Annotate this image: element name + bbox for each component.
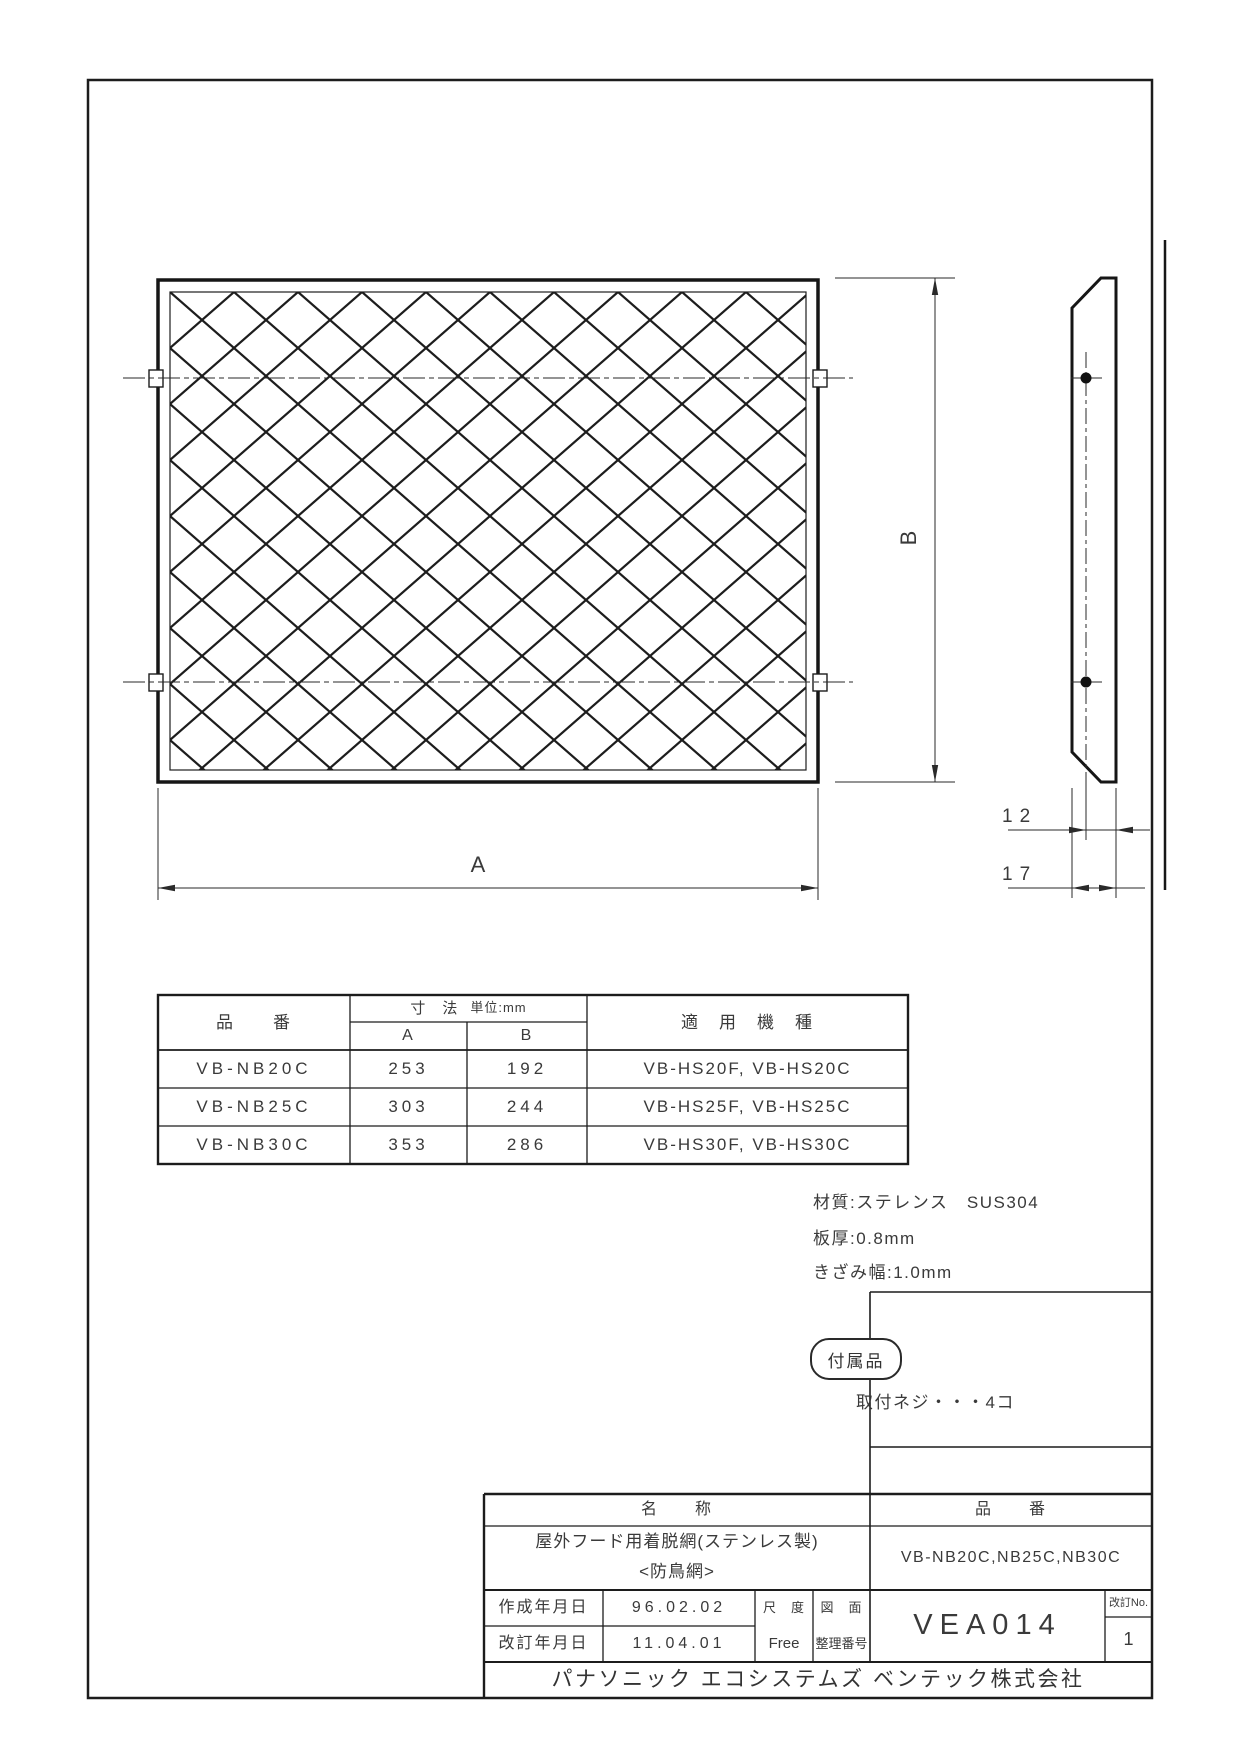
title-revised-date: 11.04.01 bbox=[603, 1626, 755, 1662]
screw-lower bbox=[1081, 677, 1092, 688]
table-row-models: VB-HS30F, VB-HS30C bbox=[587, 1126, 908, 1164]
title-name-line1: 屋外フード用着脱網(ステンレス製) bbox=[484, 1527, 870, 1557]
title-name-label: 名 称 bbox=[484, 1494, 870, 1526]
table-row-a: 303 bbox=[350, 1088, 467, 1126]
dim-a-label: A bbox=[471, 852, 486, 877]
title-created-label: 作成年月日 bbox=[484, 1590, 603, 1626]
title-drawing-no: VEA014 bbox=[870, 1590, 1105, 1662]
table-row-part-no: VB-NB20C bbox=[158, 1050, 350, 1088]
table-row-part-no: VB-NB25C bbox=[158, 1088, 350, 1126]
title-scale-value: Free bbox=[755, 1626, 813, 1662]
title-drawing-no-label-2: 整理番号 bbox=[813, 1626, 870, 1662]
table-row-a: 253 bbox=[350, 1050, 467, 1088]
dim-b-label: B bbox=[896, 531, 921, 546]
table-row-part-no: VB-NB30C bbox=[158, 1126, 350, 1164]
table-row-b: 286 bbox=[467, 1126, 587, 1164]
table-header-models: 適 用 機 種 bbox=[587, 995, 908, 1050]
table-row-a: 353 bbox=[350, 1126, 467, 1164]
table-header-b: B bbox=[467, 1022, 587, 1050]
note-thickness: 板厚:0.8mm bbox=[813, 1224, 916, 1249]
dim-12-label: 12 bbox=[1002, 806, 1037, 827]
table-header-unit: 単位:mm bbox=[470, 1001, 526, 1016]
drawing-sheet: { "drawing_labels": { "dim_a": "A", "dim… bbox=[0, 0, 1240, 1755]
table-header-dims: 寸 法 単位:mm bbox=[350, 995, 587, 1022]
drawing-linework: A B 12 17 bbox=[0, 0, 1240, 1755]
title-revised-label: 改訂年月日 bbox=[484, 1626, 603, 1662]
front-view bbox=[123, 280, 853, 782]
table-header-part-no: 品 番 bbox=[158, 995, 350, 1050]
note-notch-width: きざみ幅:1.0mm bbox=[813, 1258, 953, 1283]
title-part-no-value: VB-NB20C,NB25C,NB30C bbox=[870, 1526, 1152, 1590]
title-drawing-no-label-1: 図 面 bbox=[813, 1590, 870, 1626]
title-name-line2: <防鳥網> bbox=[484, 1557, 870, 1587]
title-created-date: 96.02.02 bbox=[603, 1590, 755, 1626]
title-part-no-label: 品 番 bbox=[870, 1494, 1152, 1526]
accessories-badge: 付属品 bbox=[810, 1338, 902, 1380]
table-header-a: A bbox=[350, 1022, 467, 1050]
table-row-b: 192 bbox=[467, 1050, 587, 1088]
dim-17-label: 17 bbox=[1002, 864, 1037, 885]
screw-upper bbox=[1081, 373, 1092, 384]
dimension-a bbox=[158, 788, 818, 900]
title-rev-label: 改訂No. bbox=[1105, 1590, 1152, 1617]
note-material: 材質:ステレンス SUS304 bbox=[813, 1188, 1039, 1213]
table-row-models: VB-HS25F, VB-HS25C bbox=[587, 1088, 908, 1126]
dimension-b bbox=[835, 278, 955, 782]
title-scale-label: 尺 度 bbox=[755, 1590, 813, 1626]
title-company: パナソニック エコシステムズ ベンテック株式会社 bbox=[484, 1662, 1152, 1698]
title-rev-value: 1 bbox=[1105, 1617, 1152, 1662]
table-header-dims-label: 寸 法 bbox=[410, 1000, 458, 1017]
mesh-pattern bbox=[170, 292, 806, 770]
side-profile bbox=[1072, 278, 1116, 782]
accessories-item: 取付ネジ・・・4コ bbox=[856, 1388, 1015, 1413]
table-row-b: 244 bbox=[467, 1088, 587, 1126]
table-row-models: VB-HS20F, VB-HS20C bbox=[587, 1050, 908, 1088]
